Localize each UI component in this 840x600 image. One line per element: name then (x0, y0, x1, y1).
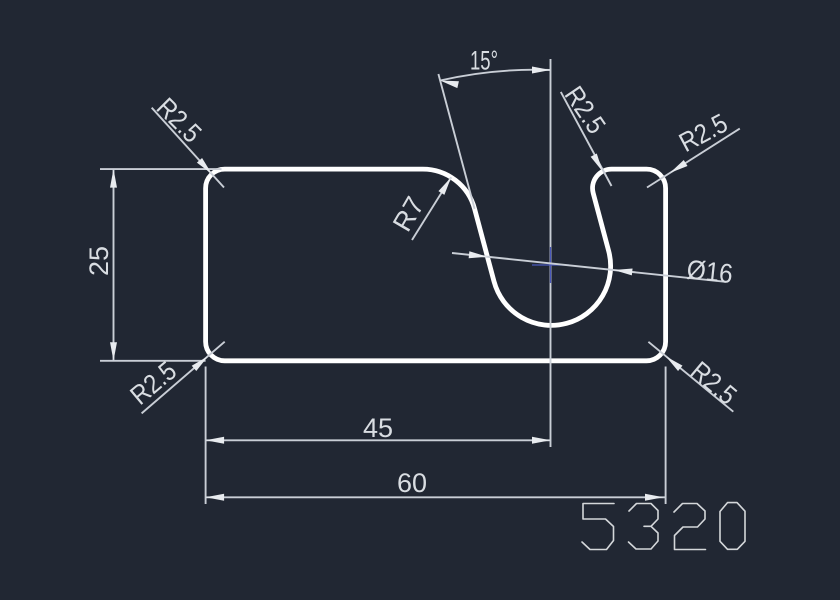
svg-text:45: 45 (363, 413, 393, 443)
svg-text:60: 60 (397, 468, 427, 498)
svg-text:Ø16: Ø16 (685, 254, 734, 289)
svg-text:25: 25 (84, 246, 114, 276)
svg-text:15°: 15° (470, 46, 498, 76)
